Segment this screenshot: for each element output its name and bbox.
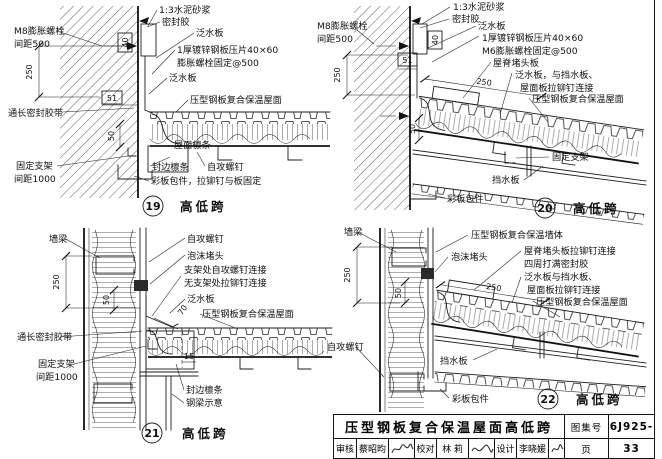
dim-250: 250 — [25, 64, 34, 79]
label-flashing: 泛水板 — [196, 27, 224, 39]
designer-signature — [548, 438, 564, 458]
label-edge-purlin: 封边檩条 — [152, 161, 189, 173]
label-flashing-conn-2: 屋面板拉铆钉连接 — [520, 82, 594, 94]
label-bracket-spacing: 间距1000 — [14, 173, 56, 185]
review-label: 审核 — [334, 438, 356, 458]
detail-21-drawing: 250 50 70 15 墙梁 自攻螺钉 泡沫堵头 支架处自攻螺钉连接 无支架处… — [17, 228, 332, 443]
dim-51: 51 — [107, 94, 117, 103]
label-flashing-conn-1: 泛水板，与挡水板、 — [515, 69, 598, 81]
page-label: 页 — [564, 438, 608, 458]
detail-number: 20 — [537, 202, 553, 215]
atlas-number-label: 图集号 — [564, 415, 608, 438]
dim-50: 50 — [408, 124, 417, 134]
label-foam-plug: 泡沫堵头 — [451, 251, 488, 263]
label-mortar: 1:3水泥砂浆 — [159, 4, 211, 16]
checker-signature-icon — [470, 441, 494, 457]
label-screw: 自攻螺钉 — [187, 233, 224, 245]
designer-signature-icon — [550, 441, 564, 457]
label-roof-panel: 压型钢板复合保温屋面 — [190, 94, 282, 106]
sheet-title: 压型钢板复合保温屋面高低跨 — [334, 415, 564, 438]
designer-name: 李晓媛 — [516, 438, 548, 458]
label-screw: 自攻螺钉 — [327, 341, 364, 353]
label-anchor-spacing: 间距500 — [14, 38, 50, 50]
label-roof-purlin: 屋面檩条 — [174, 139, 211, 151]
label-ridge-cap-1: 屋脊堵头板拉铆钉连接 — [524, 245, 616, 257]
reviewer-signature — [388, 438, 414, 458]
label-connection-2: 无支架处拉铆钉连接 — [184, 277, 267, 289]
label-roof-panel: 压型钢板复合保温屋面 — [536, 296, 628, 308]
dim-250-slope: 250 — [485, 282, 502, 293]
dim-15: 15 — [184, 352, 194, 361]
detail-caption: 高低跨 — [573, 201, 620, 216]
label-press-strip: 1厚镀锌钢板压片40×60 — [482, 32, 583, 44]
label-screw: 自攻螺钉 — [207, 161, 244, 173]
detail-19-drawing: 250 51 40 50 1:3水泥砂浆 密封胶 泛水板 1厚镀锌钢板压片40×… — [8, 4, 330, 216]
label-ridge-cap: 屋脊堵头板 — [493, 57, 539, 69]
label-anchor-spacing: 间距500 — [317, 33, 353, 45]
label-connection-1: 支架处自攻螺钉连接 — [184, 264, 267, 276]
label-wall-girt: 墙梁 — [344, 226, 362, 238]
label-bolt-fix: M6膨胀螺栓固定@500 — [482, 45, 578, 57]
detail-number: 19 — [145, 200, 160, 213]
label-wrap-trim: 彩板包件 — [452, 393, 489, 405]
label-flashing-2: 泛水板 — [169, 72, 197, 84]
detail-number: 21 — [144, 427, 159, 440]
atlas-number-value: 06J925-2 — [608, 415, 654, 438]
label-bolt-fix: 膨胀螺栓固定@500 — [177, 57, 259, 69]
page-border — [654, 0, 655, 459]
dim-50: 50 — [394, 288, 403, 298]
label-anchor-bolt: M8膨胀螺栓 — [317, 20, 368, 32]
label-wall-panel: 压型钢板复合保温墙体 — [471, 229, 563, 241]
label-ridge-cap-2: 四周打满密封胶 — [524, 258, 588, 270]
label-wrap-trim: 彩板包件 — [447, 193, 484, 205]
label-steel-beam: 钢梁示意 — [186, 397, 223, 409]
label-edge-purlin: 封边檩条 — [186, 384, 223, 396]
dim-50: 50 — [102, 295, 111, 305]
dim-250: 250 — [52, 274, 61, 289]
label-wrap-trim: 彩板包件，拉铆钉与板固定 — [151, 175, 261, 187]
label-seal-tape: 通长密封胶带 — [17, 331, 72, 343]
drawing-canvas: 250 51 40 50 1:3水泥砂浆 密封胶 泛水板 1厚镀锌钢板压片40×… — [0, 0, 662, 459]
label-flashing: 泛水板 — [478, 20, 506, 32]
reviewer-signature-icon — [390, 441, 414, 457]
label-bracket-spacing: 间距1000 — [36, 371, 78, 383]
label-flashing-conn-2: 屋面板拉铆钉连接 — [527, 284, 601, 296]
dim-250: 250 — [343, 267, 352, 282]
dim-40: 40 — [121, 37, 130, 47]
detail-22-drawing: 250 250 50 墙梁 — [327, 226, 647, 412]
dim-50: 50 — [107, 131, 116, 141]
design-label: 设计 — [494, 438, 516, 458]
label-foam-plug: 泡沫堵头 — [187, 250, 224, 262]
checker-signature — [468, 438, 494, 458]
label-bracket: 固定支架 — [38, 358, 75, 370]
detail-caption: 高低跨 — [180, 199, 227, 214]
label-wall-girt: 墙梁 — [49, 233, 67, 245]
label-roof-panel: 压型钢板复合保温屋面 — [532, 93, 624, 105]
label-anchor-bolt: M8膨胀螺栓 — [14, 25, 65, 37]
label-water-baffle: 挡水板 — [440, 355, 468, 367]
title-block: 压型钢板复合保温屋面高低跨 图集号 06J925-2 审核 蔡昭昀 校对 林 莉… — [333, 414, 655, 459]
detail-20-drawing: 250 250 51 40 50 — [317, 1, 648, 224]
label-roof-panel: 压型钢板复合保温屋面 — [202, 308, 294, 320]
checker-name: 林 莉 — [436, 438, 468, 458]
dim-250: 250 — [333, 67, 342, 82]
label-seal-tape: 通长密封胶带 — [8, 107, 63, 119]
label-sealant: 密封胶 — [452, 13, 480, 25]
detail-number: 22 — [540, 393, 555, 406]
reviewer-name: 蔡昭昀 — [356, 438, 388, 458]
detail-caption: 高低跨 — [576, 392, 623, 407]
drawing-sheet: 250 51 40 50 1:3水泥砂浆 密封胶 泛水板 1厚镀锌钢板压片40×… — [0, 0, 662, 459]
dim-51: 51 — [402, 56, 412, 65]
check-label: 校对 — [414, 438, 436, 458]
label-flashing-conn-1: 泛水板与挡水板、 — [524, 271, 598, 283]
dim-40: 40 — [431, 35, 440, 45]
label-mortar: 1:3水泥砂浆 — [453, 1, 505, 13]
detail-caption: 高低跨 — [182, 426, 229, 441]
label-flashing: 泛水板 — [187, 293, 215, 305]
page-number: 33 — [608, 438, 654, 458]
label-bracket: 固定支架 — [552, 151, 589, 163]
label-sealant: 密封胶 — [162, 16, 190, 28]
label-press-strip: 1厚镀锌钢板压片40×60 — [177, 44, 278, 56]
label-water-baffle: 挡水板 — [492, 174, 520, 186]
label-bracket: 固定支架 — [16, 160, 53, 172]
